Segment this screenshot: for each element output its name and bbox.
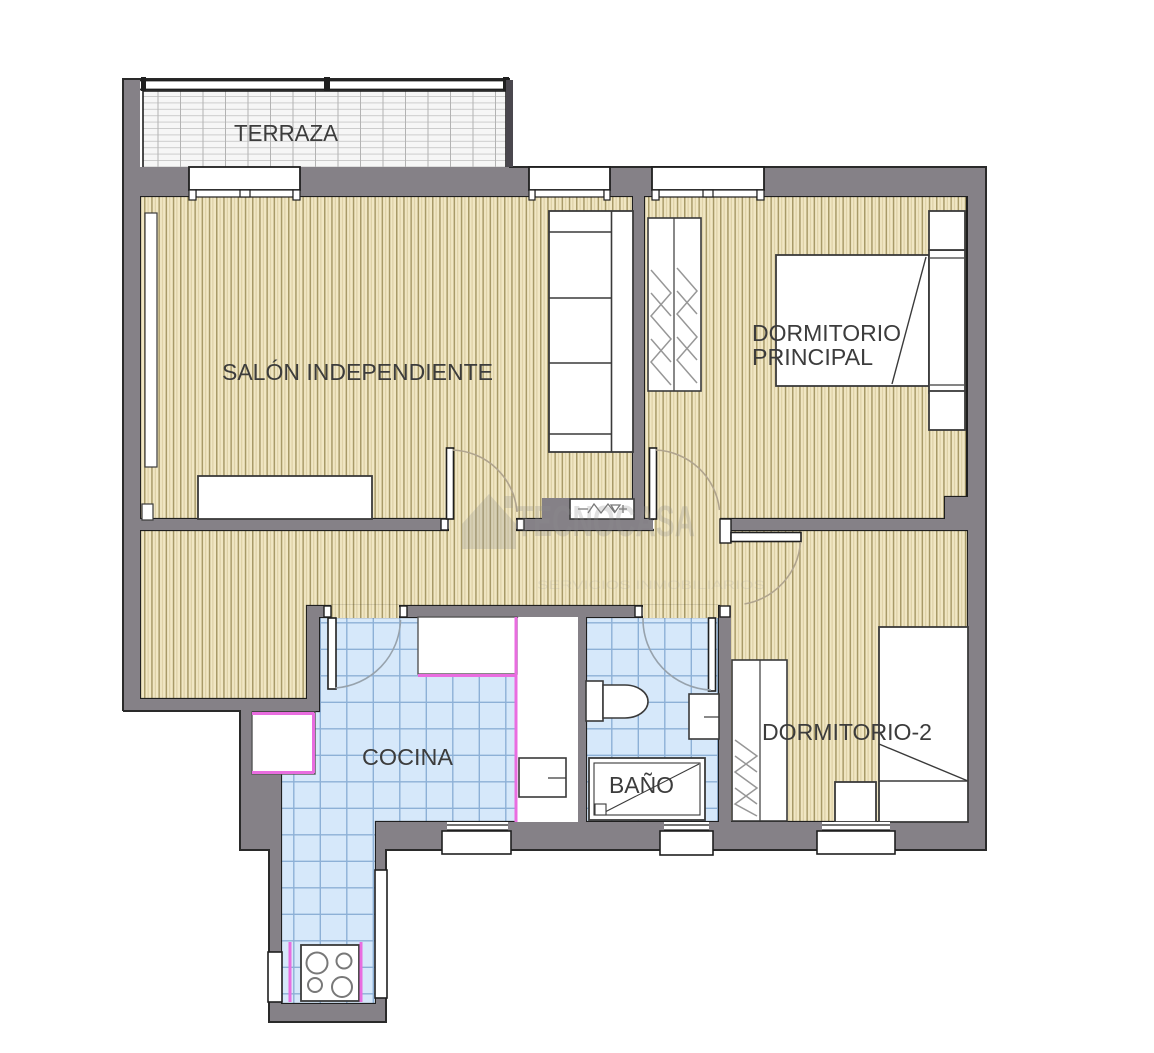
svg-text:BAÑO: BAÑO	[609, 772, 674, 798]
svg-text:TECNOCASA: TECNOCASA	[516, 497, 695, 546]
svg-text:SERVICIOS INMOBILIARIOS: SERVICIOS INMOBILIARIOS	[537, 580, 765, 592]
svg-text:TERRAZA: TERRAZA	[234, 120, 339, 146]
svg-text:COCINA: COCINA	[362, 744, 454, 770]
svg-text:SALÓN INDEPENDIENTE: SALÓN INDEPENDIENTE	[222, 359, 493, 385]
svg-text:DORMITORIO-2: DORMITORIO-2	[762, 719, 932, 745]
svg-text:DORMITORIO: DORMITORIO	[752, 320, 901, 346]
svg-text:PRINCIPAL: PRINCIPAL	[752, 344, 873, 370]
